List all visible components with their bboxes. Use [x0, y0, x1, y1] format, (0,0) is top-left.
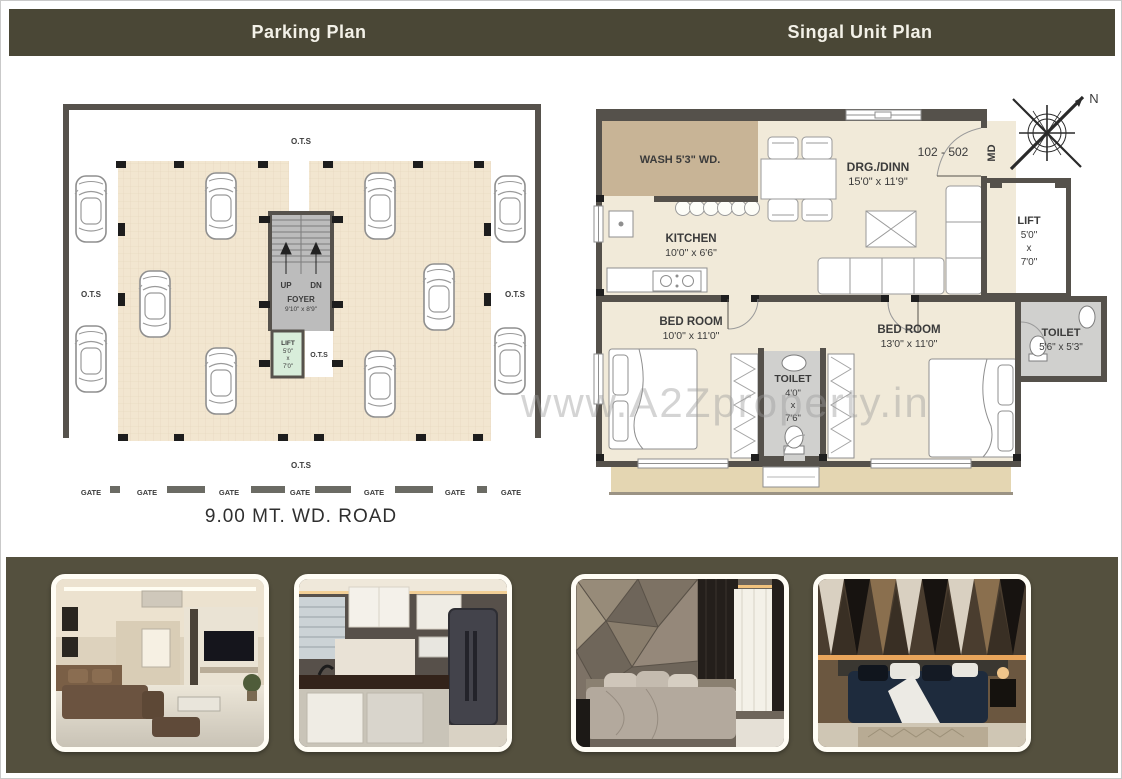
unit-lift-h: 7'0" — [1021, 257, 1038, 268]
photo-living-room — [51, 574, 269, 752]
bedroom-right-name: BED ROOM — [877, 324, 940, 336]
wardrobe-left — [731, 354, 758, 458]
brochure-page: Parking Plan Singal Unit Plan — [0, 0, 1122, 779]
toilet-attached-name: TOILET — [1042, 327, 1081, 339]
kitchen-image — [299, 579, 507, 747]
wardrobe-right — [828, 354, 854, 458]
ots-left-label: O.T.S — [81, 290, 102, 299]
main-door-label: MD — [986, 144, 998, 161]
kitchen-name: KITCHEN — [665, 233, 716, 245]
gate-label: GATE — [137, 488, 157, 497]
gate-row: GATE GATE GATE GATE GATE GATE GATE — [81, 486, 521, 497]
parking-lift-x: x — [287, 356, 290, 362]
unit-lift-name: LIFT — [1017, 215, 1040, 227]
drg-name: DRG./DINN — [847, 160, 910, 174]
photo-bedroom-master — [571, 574, 789, 752]
photo-bedroom-accent — [813, 574, 1031, 752]
stair-dn-label: DN — [310, 281, 322, 290]
compass-rose-icon: N — [999, 87, 1109, 172]
wash-label: WASH 5'3" WD. — [640, 154, 721, 166]
toilet-center-x: x — [791, 400, 796, 411]
toilet-center-h: 7'6" — [785, 413, 801, 424]
unit-lift-x: x — [1027, 243, 1032, 254]
staircase: UP DN FOYER 9'10" x 8'9" — [259, 211, 343, 331]
gate-label: GATE — [81, 488, 101, 497]
unit-plan-title: Singal Unit Plan — [787, 22, 932, 43]
parking-lift-name: LIFT — [281, 340, 295, 347]
photo-strip — [6, 557, 1118, 773]
compass-north-label: N — [1089, 91, 1098, 106]
bedroom-left-size: 10'0" x 11'0" — [663, 330, 720, 342]
gate-label: GATE — [364, 488, 384, 497]
parking-lift: LIFT 5'0" x 7'0" O.T.S — [259, 331, 343, 377]
foyer-size: 9'10" x 8'9" — [285, 306, 318, 313]
bed-left — [609, 349, 697, 449]
photo-kitchen — [294, 574, 512, 752]
gate-label: GATE — [445, 488, 465, 497]
kitchen-size: 10'0" x 6'6" — [665, 247, 717, 259]
living-room-image — [56, 579, 264, 747]
ots-inner-label: O.T.S — [310, 352, 328, 359]
foyer-name: FOYER — [287, 295, 315, 304]
gate-label: GATE — [290, 488, 310, 497]
bedroom-right-size: 13'0" x 11'0" — [881, 338, 938, 350]
parking-lift-h: 7'0" — [283, 364, 293, 370]
parking-lift-w: 5'0" — [283, 349, 293, 355]
header-bar: Parking Plan Singal Unit Plan — [9, 9, 1115, 56]
bed-right — [929, 359, 1017, 457]
parking-plan-drawing: UP DN FOYER 9'10" x 8'9" LIFT 5'0" x 7'0… — [63, 96, 546, 546]
ots-bottom-label: O.T.S — [291, 461, 312, 470]
dining-set — [761, 137, 836, 221]
balcony-edge — [609, 492, 1013, 495]
road-label: 9.00 MT. WD. ROAD — [131, 506, 471, 528]
stair-up-label: UP — [280, 281, 292, 290]
parking-plan-title: Parking Plan — [251, 22, 366, 43]
bedroom-master-image — [576, 579, 784, 747]
drg-size: 15'0" x 11'9" — [848, 176, 908, 188]
gate-label: GATE — [501, 488, 521, 497]
gate-label: GATE — [219, 488, 239, 497]
ots-right-label: O.T.S — [505, 290, 526, 299]
bedroom-left-name: BED ROOM — [659, 316, 722, 328]
toilet-center-w: 4'0" — [785, 388, 801, 399]
unit-number-label: 102 - 502 — [918, 145, 969, 159]
toilet-attached-size: 5'6" x 5'3" — [1039, 342, 1083, 353]
ots-top-label: O.T.S — [291, 137, 312, 146]
toilet-center-name: TOILET — [774, 373, 812, 385]
bedroom-accent-image — [818, 579, 1026, 747]
unit-lift-w: 5'0" — [1021, 230, 1038, 241]
